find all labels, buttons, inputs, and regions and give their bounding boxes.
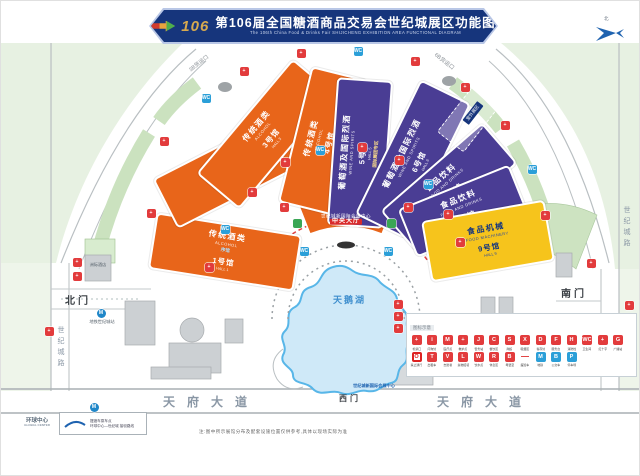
legend-icon: G [613, 335, 623, 345]
legend-item: +红十字 [596, 335, 609, 351]
legend-caption: 救护点 [459, 346, 468, 351]
legend-item: +检票口 [410, 335, 423, 351]
shuttle-legend-box: 摆渡车乘车点 环球中心—世纪城 接驳路线 [59, 412, 147, 435]
legend-caption: 公交车 [552, 362, 561, 367]
legend-item: O禁止通行 [410, 352, 423, 368]
gate-north: 北门 [65, 292, 91, 307]
legend-caption: 饮水点 [474, 362, 483, 367]
lake-label: 天鹅湖 [333, 293, 366, 306]
legend-caption: 消防栓 [567, 346, 576, 351]
hedge-strip [99, 133, 149, 249]
legend-icon: H [567, 335, 577, 345]
legend-icon: — [520, 352, 530, 362]
legend-row-1: +检票口i问询处M医疗点+救护点J警务站C餐饮区S商超X吸烟区D寄存处F服务台H… [410, 335, 633, 351]
legend-item: J警务站 [472, 335, 485, 351]
legend-item: B母婴室 [503, 352, 516, 368]
park-left-low [1, 263, 51, 391]
legend-item: +救护点 [457, 335, 470, 351]
swan-lake [282, 266, 411, 394]
plaza-sculpture [337, 242, 355, 249]
footnote: 注:图中所示展馆分布及配套设施位置仅供参考,具体以现场实际为准 [199, 429, 348, 435]
legend-item: L失物招领 [457, 352, 470, 368]
legend-caption: 志愿者 [443, 362, 452, 367]
legend-caption: 警务站 [474, 346, 483, 351]
legend-caption: 停车场 [567, 362, 576, 367]
legend-item: R休息区 [488, 352, 501, 368]
legend-icon: F [551, 335, 561, 345]
legend-panel: 图标示意 +检票口i问询处M医疗点+救护点J警务站C餐饮区S商超X吸烟区D寄存处… [406, 313, 637, 377]
legend-caption: 广播站 [614, 346, 623, 351]
legend-item: C餐饮区 [488, 335, 501, 351]
legend-caption: 摆渡车 [521, 362, 530, 367]
metro-station-label: 地铁世纪城站 [85, 320, 119, 325]
legend-caption: 禁止通行 [411, 362, 422, 367]
legend-caption: 吸烟区 [521, 346, 530, 351]
legend-caption: 卫生间 [583, 346, 592, 351]
legend-item: X吸烟区 [519, 335, 532, 351]
legend-item: WC卫生间 [581, 335, 594, 351]
legend-caption: 寄存处 [536, 346, 545, 351]
legend-icon: B [551, 352, 561, 362]
legend-caption: 医疗点 [443, 346, 452, 351]
fair-logo-arrow-icon [151, 21, 175, 32]
legend-caption: 商超 [507, 346, 513, 351]
legend-icon: O [412, 352, 422, 362]
legend-item: P停车场 [565, 352, 578, 368]
legend-item: M医疗点 [441, 335, 454, 351]
legend-icon: R [489, 352, 499, 362]
legend-caption: 问询处 [428, 346, 437, 351]
legend-icon: W [474, 352, 484, 362]
legend-caption: 服务台 [552, 346, 561, 351]
legend-row-2: O禁止通行T出租车V志愿者L失物招领W饮水点R休息区B母婴室—摆渡车M地铁B公交… [410, 352, 633, 368]
century-road-right: 世纪城路 [621, 206, 631, 250]
legend-item: G广播站 [612, 335, 625, 351]
legend-caption: 红十字 [598, 346, 607, 351]
legend-icon: C [489, 335, 499, 345]
legend-icon: + [458, 335, 468, 345]
legend-item: D寄存处 [534, 335, 547, 351]
legend-caption: 检票口 [412, 346, 421, 351]
legend-item: M地铁 [534, 352, 547, 368]
legend-icon: M [443, 335, 453, 345]
legend-icon: L [458, 352, 468, 362]
legend-icon: i [427, 335, 437, 345]
gate-west: 西门 [339, 393, 361, 404]
compass: 北 [586, 19, 630, 49]
venue-sign: 世纪城新国际会展中心 [353, 383, 395, 389]
legend-icon: T [427, 352, 437, 362]
legend-caption: 失物招领 [457, 362, 468, 367]
legend-item: S商超 [503, 335, 516, 351]
legend-icon: J [474, 335, 484, 345]
legend-icon: P [567, 352, 577, 362]
legend-item: F服务台 [550, 335, 563, 351]
compass-bird-icon [586, 19, 630, 49]
legend-icon: + [412, 335, 422, 345]
legend-icon: M [536, 352, 546, 362]
page-subtitle: The 106th China Food & Drinks Fair SHIJI… [250, 31, 461, 36]
legend-caption: 出租车 [428, 362, 437, 367]
legend-item: B公交车 [550, 352, 563, 368]
hotel-label: 洲际酒店 [86, 263, 110, 268]
title-banner: 106 第106届全国糖酒商品交易会世纪城展区功能图 The 106th Chi… [149, 8, 498, 44]
global-center-label: 环球中心 GLOBAL CENTER [17, 418, 57, 427]
legend-icon: D [536, 335, 546, 345]
legend-icon: X [520, 335, 530, 345]
legend-icon: B [505, 352, 515, 362]
venue-map: 106 第106届全国糖酒商品交易会世纪城展区功能图 The 106th Chi… [0, 0, 640, 476]
legend-item: W饮水点 [472, 352, 485, 368]
avenue-label-left: 天府大道 [163, 393, 259, 410]
global-center-logo-icon [63, 418, 87, 430]
gate-south: 南门 [561, 285, 587, 300]
legend-item: V志愿者 [441, 352, 454, 368]
avenue-label-right: 天府大道 [437, 393, 533, 410]
central-hall-label: 世纪城新国际会展中心 中央大厅 [300, 214, 392, 227]
legend-item: —摆渡车 [519, 352, 532, 368]
legend-icon: + [598, 335, 608, 345]
legend-icon: S [505, 335, 515, 345]
legend-item: i问询处 [426, 335, 439, 351]
legend-caption: 餐饮区 [490, 346, 499, 351]
fair-logo-106: 106 [181, 18, 209, 35]
legend-item: H消防栓 [565, 335, 578, 351]
legend-caption: 母婴室 [505, 362, 514, 367]
legend-icon: WC [582, 335, 592, 345]
legend-header: 图标示意 [410, 325, 434, 331]
century-road-left: 世纪城路 [55, 326, 65, 370]
legend-icon: V [443, 352, 453, 362]
legend-caption: 地铁 [538, 362, 544, 367]
legend-caption: 休息区 [490, 362, 499, 367]
page-title: 第106届全国糖酒商品交易会世纪城展区功能图 [215, 17, 495, 31]
legend-item: T出租车 [426, 352, 439, 368]
